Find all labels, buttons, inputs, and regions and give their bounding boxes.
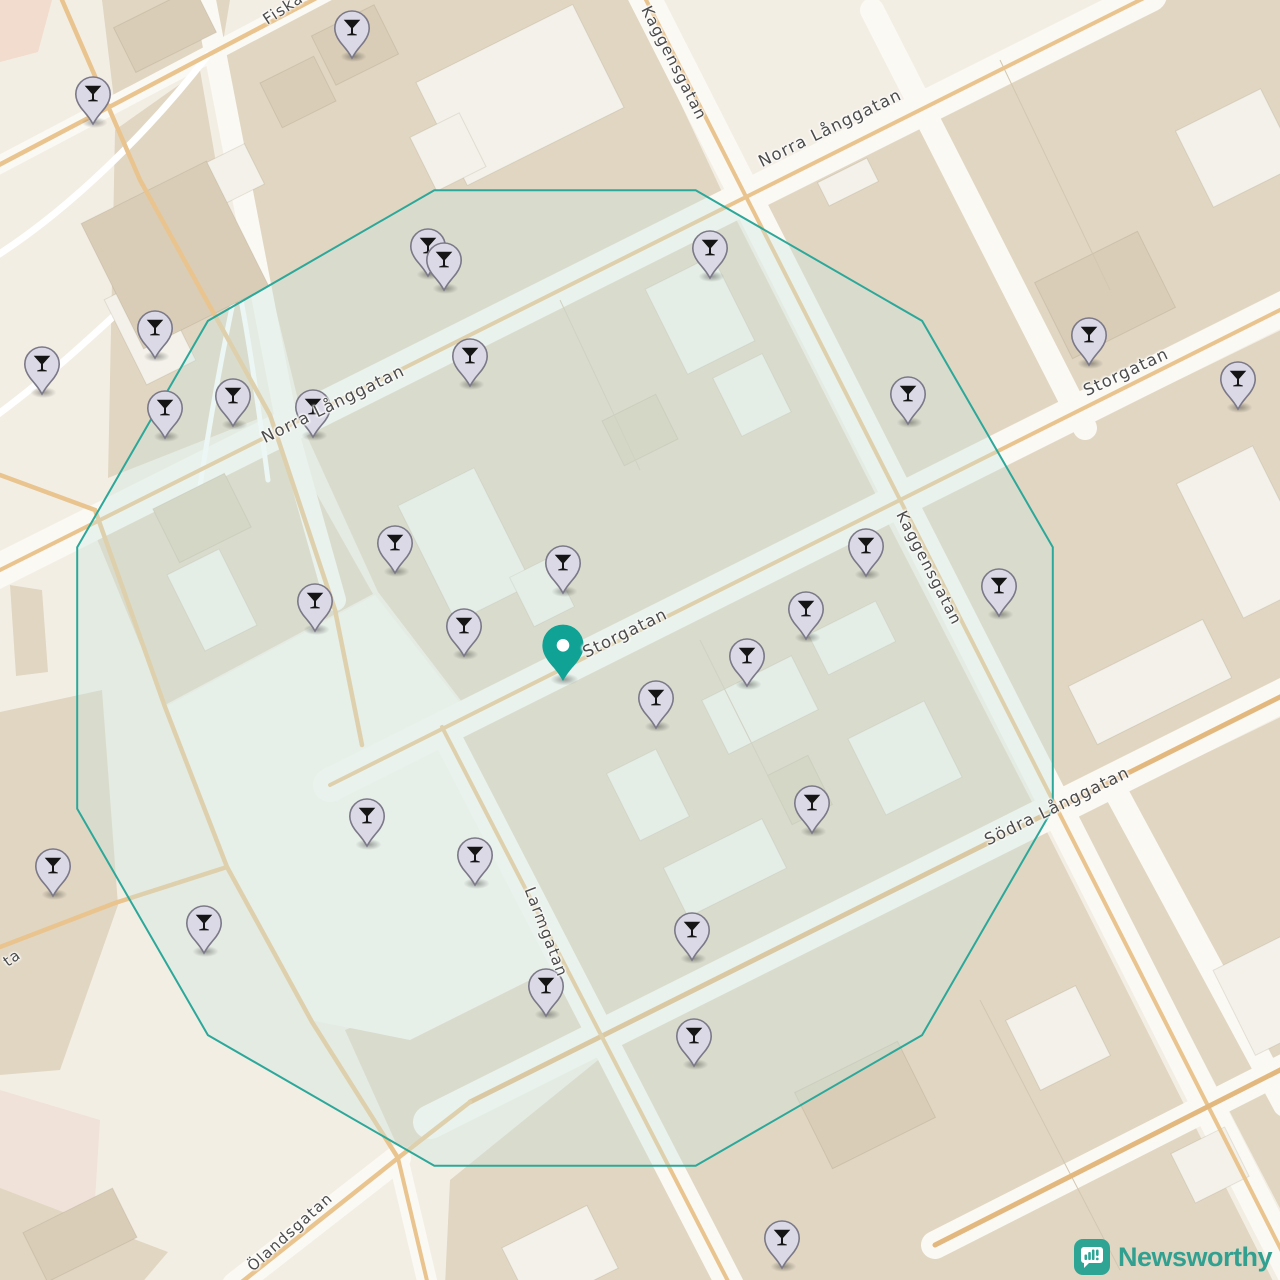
newsworthy-logo: Newsworthy [1074, 1239, 1272, 1275]
newsworthy-logo-text: Newsworthy [1118, 1242, 1272, 1273]
map [0, 0, 1280, 1280]
newsworthy-logo-icon [1074, 1239, 1110, 1275]
